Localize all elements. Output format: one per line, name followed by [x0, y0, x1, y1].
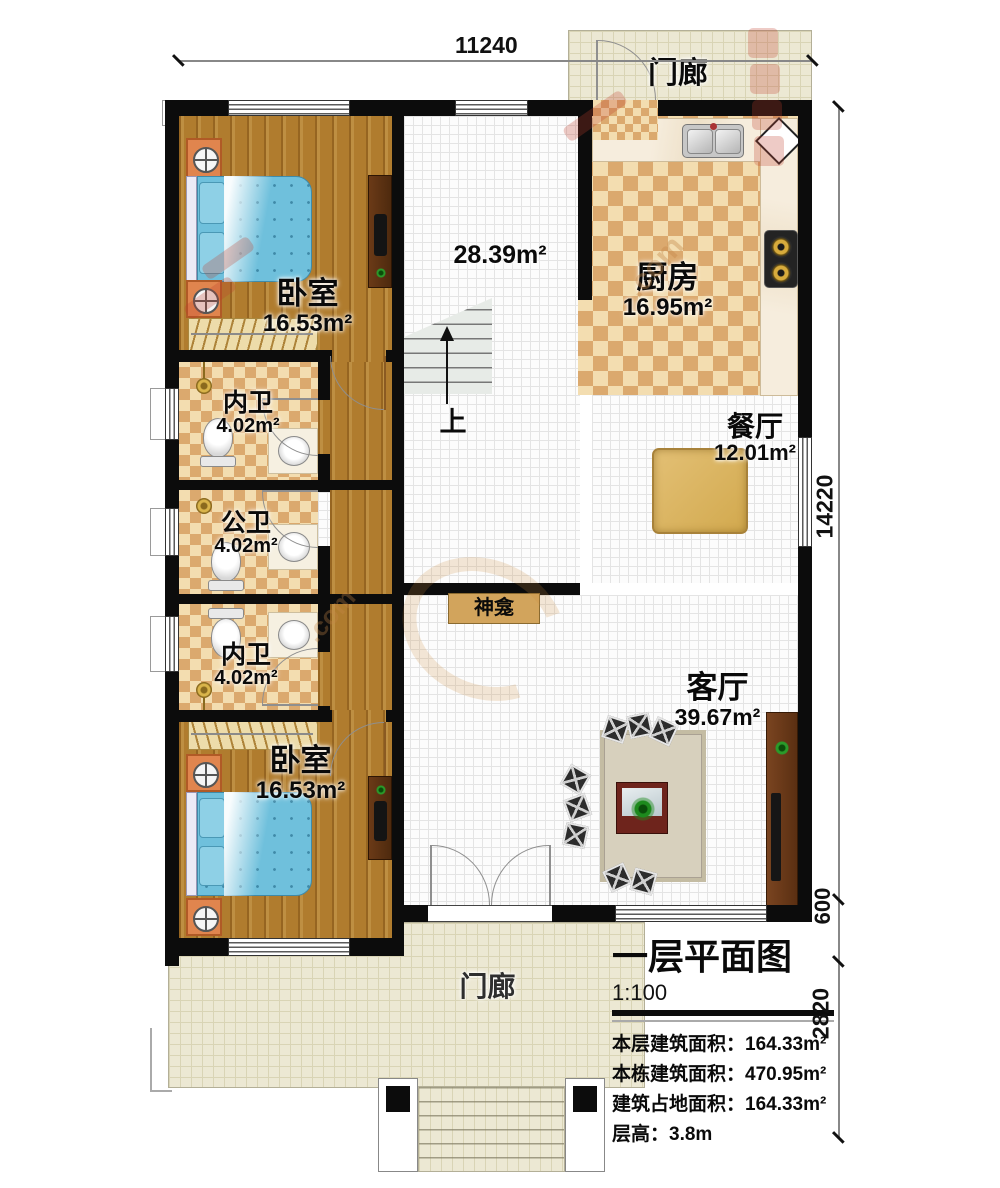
door-leaf [384, 356, 386, 410]
shrine-label: 神龛 [474, 597, 514, 619]
burner [770, 236, 792, 258]
hall-area-label: 28.39m² [430, 242, 570, 268]
plant [376, 268, 386, 278]
info-line: 本栋建筑面积：470.95m² [612, 1060, 834, 1090]
floor-corridor [330, 356, 392, 716]
sofa-cushion [562, 822, 589, 849]
porch-column-cap [573, 1086, 597, 1112]
nightstand [186, 898, 222, 936]
room-label-bedroom-bottom: 卧室 16.53m² [228, 745, 373, 803]
window [165, 388, 179, 440]
room-label-kitchen: 厨房 16.95m² [595, 262, 740, 320]
room-label-bath-mid: 公卫 4.02m² [196, 510, 296, 557]
plant [775, 741, 789, 755]
shrine-table: 神龛 [448, 593, 540, 624]
info-line: 建筑占地面积：164.33m² [612, 1090, 834, 1120]
stairs-up-arrow [446, 340, 448, 404]
window-living [615, 905, 767, 922]
nightstand [186, 280, 222, 318]
dimension-top-value: 11240 [455, 32, 518, 59]
room-label-porch-top: 门廊 [618, 58, 738, 90]
door-opening [318, 492, 330, 546]
kitchen-door-mat [593, 100, 658, 140]
dimension-right-bottom: 2820 [808, 981, 835, 1047]
window [165, 508, 179, 556]
window [455, 100, 528, 116]
pillow [199, 232, 225, 274]
room-label-living: 客厅 39.67m² [645, 672, 790, 729]
door-opening [318, 400, 330, 454]
title-underline-thin [612, 1020, 834, 1022]
window [228, 100, 350, 116]
floor-plan: 上 神龛 [0, 0, 1000, 1188]
bed [186, 176, 312, 282]
room-label-bath-bottom: 内卫 4.02m² [196, 642, 296, 689]
wall [392, 716, 404, 938]
window [165, 616, 179, 672]
wall [392, 116, 404, 716]
bed [186, 792, 312, 896]
porch-column-cap [386, 1086, 410, 1112]
stairs-up-arrowhead [440, 326, 454, 341]
desk [368, 175, 392, 288]
dimension-line-top [178, 60, 812, 62]
entry-door-threshold [428, 905, 552, 922]
dimension-right-main: 14220 [812, 472, 839, 542]
tv-cabinet [766, 712, 798, 912]
porch-steps [418, 1086, 565, 1172]
page-title: 一层平面图 [612, 936, 792, 977]
door-leaf [262, 704, 318, 706]
headboard [186, 792, 197, 896]
window [228, 938, 350, 956]
scale-label: 1:100 [612, 980, 667, 1005]
room-label-dining: 餐厅 12.01m² [685, 412, 825, 464]
kitchen-sink [682, 124, 744, 158]
plant [376, 785, 386, 795]
door-opening [318, 652, 330, 706]
stove [764, 230, 798, 288]
pillow [199, 846, 225, 886]
coffee-table [616, 782, 668, 834]
nightstand [186, 754, 222, 792]
monitor [374, 214, 387, 256]
sink-basin [715, 129, 741, 154]
pillow [199, 182, 225, 224]
room-label-bedroom-top: 卧室 16.53m² [235, 278, 380, 336]
nightstand [186, 138, 222, 178]
pillow [199, 798, 225, 838]
door-leaf [384, 722, 386, 776]
blanket [224, 176, 276, 282]
dimension-line-right [838, 106, 840, 1138]
sink-basin [687, 129, 713, 154]
title-underline [612, 1010, 834, 1016]
title-info: 本层建筑面积：164.33m² 本栋建筑面积：470.95m² 建筑占地面积：1… [612, 1030, 834, 1150]
tv [771, 793, 781, 881]
room-label-porch-bottom: 门廊 [425, 972, 550, 1001]
wardrobe-rail [191, 733, 313, 735]
wall [165, 594, 404, 604]
door-leaf [549, 845, 551, 905]
plant [631, 797, 655, 821]
door-opening [332, 710, 386, 722]
wall [578, 116, 592, 300]
room-label-bath-top: 内卫 4.02m² [198, 390, 298, 437]
info-line: 本层建筑面积：164.33m² [612, 1030, 834, 1060]
info-line: 层高：3.8m [612, 1120, 834, 1150]
headboard [186, 176, 197, 282]
stairs-up-label: 上 [430, 408, 476, 436]
blanket [224, 792, 276, 896]
burner [770, 262, 792, 284]
title-block: 一层平面图1:100 本层建筑面积：164.33m² 本栋建筑面积：470.95… [612, 928, 834, 1150]
wall [165, 480, 404, 490]
dimension-right-mid: 600 [810, 878, 836, 934]
faucet [710, 123, 717, 130]
monitor [374, 801, 387, 841]
